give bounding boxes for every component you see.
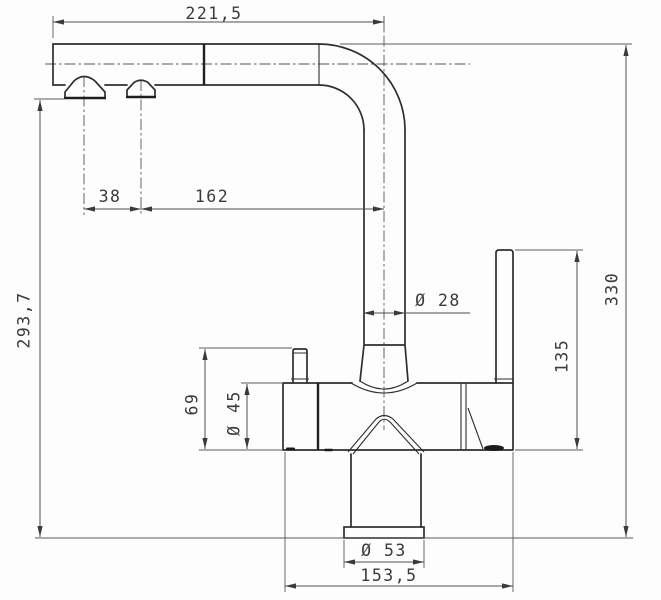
faucet-outline bbox=[35, 44, 633, 538]
technical-drawing-canvas: 221,5 38 162 293,7 Ø 28 330 135 69 Ø 45 … bbox=[0, 0, 661, 600]
valve-lever-cone-edge bbox=[468, 408, 483, 449]
dim-spout-outlet-height-label: 293,7 bbox=[15, 291, 34, 348]
body-seam-mark-center bbox=[324, 449, 333, 451]
bend-inner-curve bbox=[319, 85, 364, 130]
dim-base-diameter-label: Ø 53 bbox=[361, 541, 407, 560]
dim-body-length-label: 153,5 bbox=[360, 566, 417, 585]
dimension-arrowheads bbox=[37, 19, 628, 588]
base-flange bbox=[344, 527, 424, 538]
neck-cone bbox=[348, 416, 424, 455]
dim-body-diameter-label: Ø 45 bbox=[225, 390, 244, 436]
dimension-lines bbox=[40, 22, 626, 586]
dim-handle-height-label: 135 bbox=[553, 339, 572, 373]
dim-spout-tube-diameter-label: Ø 28 bbox=[415, 291, 461, 310]
dim-spout-reach-label: 221,5 bbox=[185, 4, 242, 23]
dimension-system: 221,5 38 162 293,7 Ø 28 330 135 69 Ø 45 … bbox=[15, 4, 633, 592]
spray-aerator-dome-1 bbox=[65, 77, 105, 99]
body-right-joint-double-line bbox=[461, 383, 466, 450]
dim-aerator-spacing-label: 38 bbox=[99, 187, 122, 206]
mounting-column bbox=[351, 454, 421, 527]
valve-base-shadow bbox=[484, 445, 504, 451]
outlet-port bbox=[293, 349, 307, 383]
dim-total-height-label: 330 bbox=[603, 272, 622, 306]
extension-lines bbox=[34, 16, 632, 592]
body-seam-mark-left bbox=[286, 448, 295, 451]
drawing-sheet: 221,5 38 162 293,7 Ø 28 330 135 69 Ø 45 … bbox=[0, 0, 661, 600]
handle-rod bbox=[496, 250, 513, 383]
dim-aerator-to-riser-label: 162 bbox=[195, 187, 229, 206]
dim-outlet-port-height-label: 69 bbox=[183, 393, 202, 416]
